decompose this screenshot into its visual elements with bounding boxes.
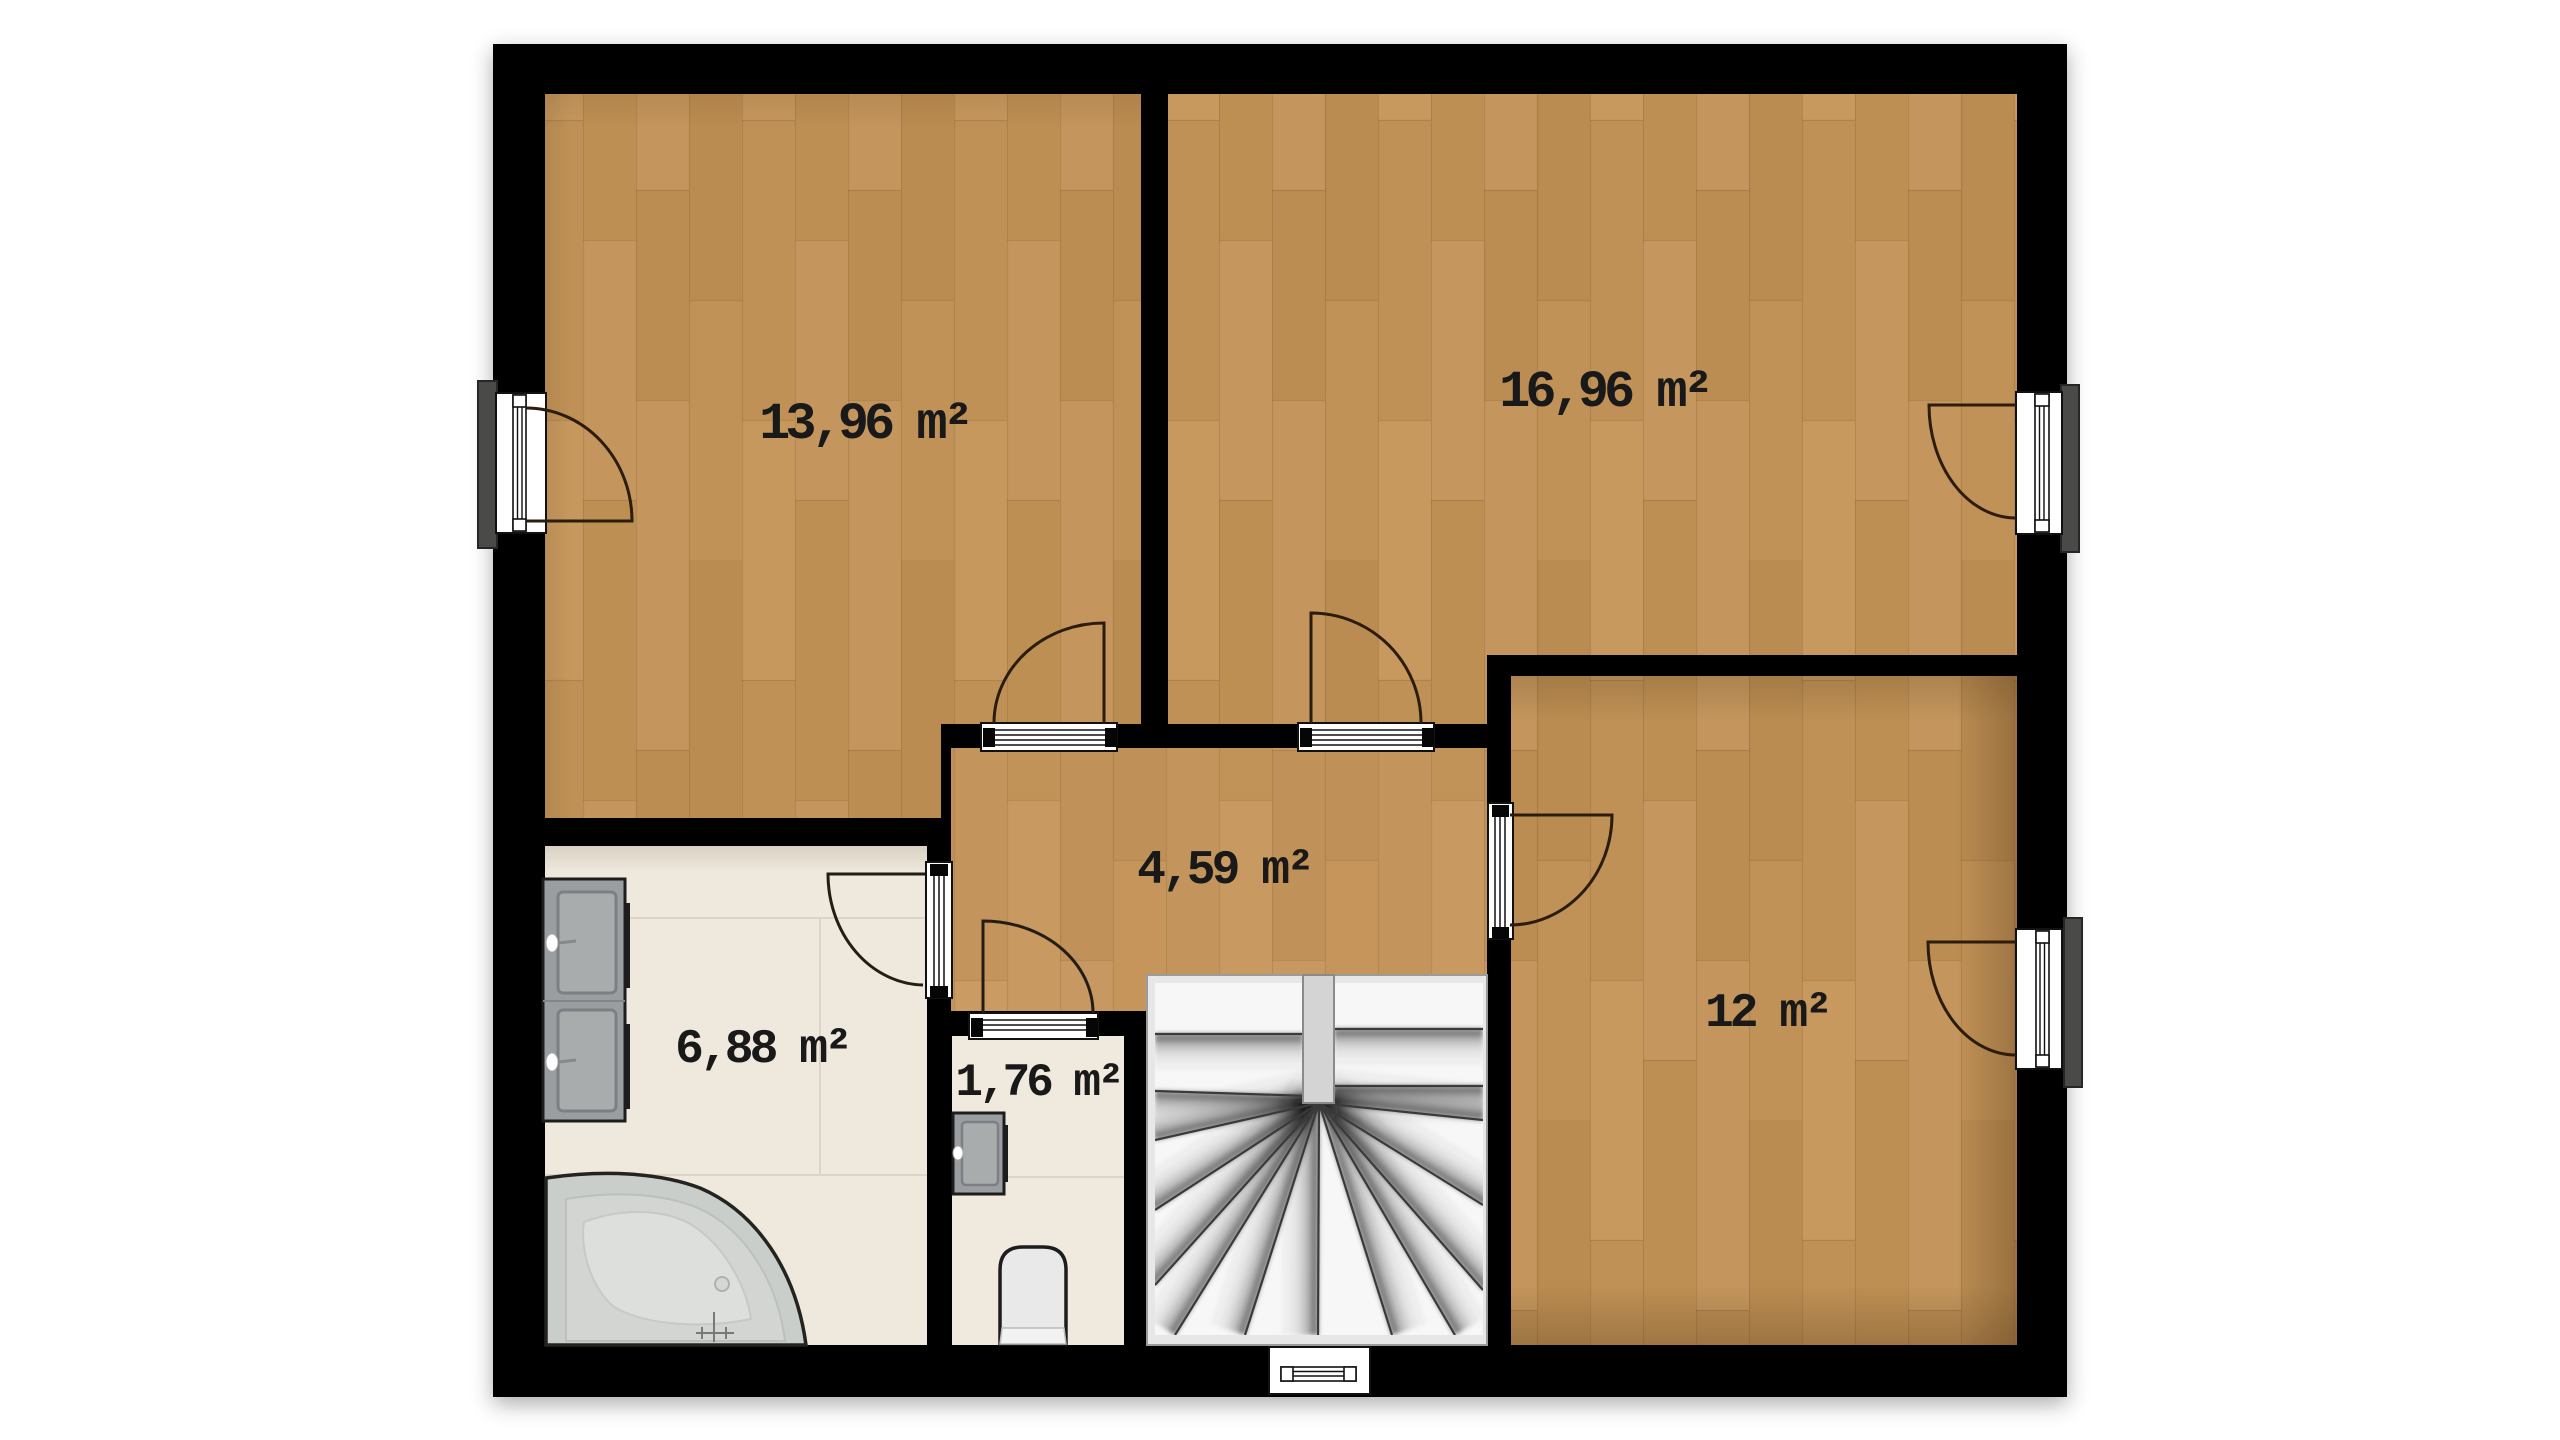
svg-text:4,59 m²: 4,59 m² [1137,844,1311,898]
svg-text:13,96 m²: 13,96 m² [759,395,969,454]
svg-text:16,96 m²: 16,96 m² [1499,363,1709,422]
svg-text:12 m²: 12 m² [1705,987,1829,1041]
svg-text:6,88 m²: 6,88 m² [675,1023,849,1077]
svg-text:1,76 m²: 1,76 m² [955,1057,1120,1109]
